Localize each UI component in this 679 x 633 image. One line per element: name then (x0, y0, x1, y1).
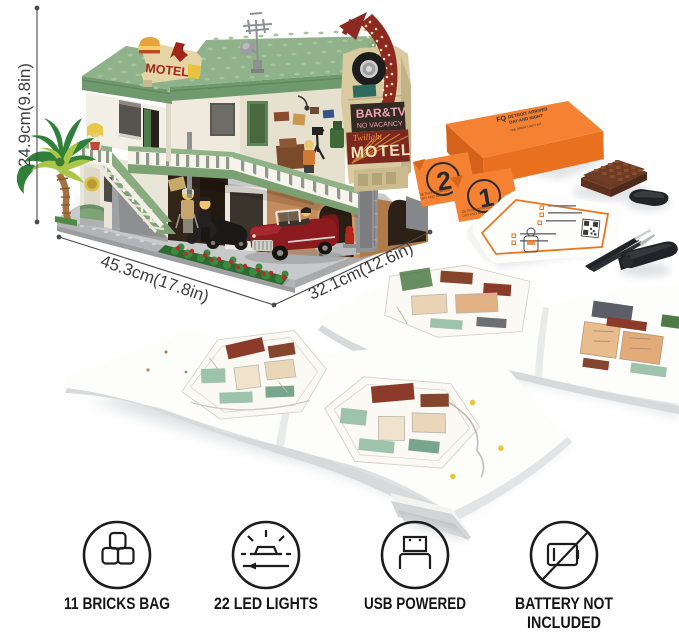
svg-text:INCLUDED: INCLUDED (527, 614, 601, 632)
svg-text:MOTEL: MOTEL (350, 142, 412, 162)
svg-text:22 LED LIGHTS: 22 LED LIGHTS (214, 595, 318, 613)
svg-text:11 BRICKS BAG: 11 BRICKS BAG (64, 595, 170, 613)
svg-text:BATTERY NOT: BATTERY NOT (515, 595, 613, 613)
svg-text:BAR&TV: BAR&TV (355, 104, 406, 121)
svg-text:Twilight: Twilight (352, 131, 382, 143)
svg-text:24.9cm(9.8in): 24.9cm(9.8in) (15, 63, 34, 167)
svg-text:USB POWERED: USB POWERED (364, 595, 466, 613)
